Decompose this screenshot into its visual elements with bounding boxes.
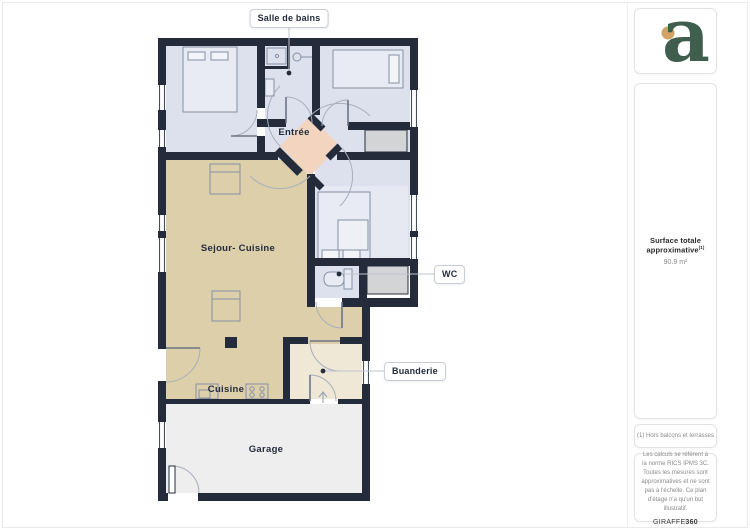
wardrobe-icon — [367, 266, 408, 294]
wardrobe-icon — [365, 130, 407, 152]
bed-icon — [183, 47, 237, 112]
floorplan-page: Entrée Sejour- Cuisine Cuisine Garage Sa… — [0, 0, 750, 530]
footnote-text: (1) Hors balcons et terrasses — [637, 433, 714, 439]
disclaimer-text: Les calculs se réfèrent à la norme RICS … — [640, 451, 711, 514]
bed-icon — [318, 186, 408, 262]
room-label-cuisine: Cuisine — [208, 384, 244, 395]
logo-letter: a — [662, 10, 710, 72]
cabinet-icon — [265, 79, 274, 96]
surface-panel: Surface totale approximative(1) 90.9 m² — [634, 83, 717, 419]
callout-salle-de-bains: Salle de bains — [250, 9, 329, 28]
stove-block-icon — [225, 337, 237, 348]
brand-wordmark: GIRAFFE360 — [653, 519, 698, 526]
room-label-garage: Garage — [249, 444, 284, 455]
room-label-sejour-cuisine: Sejour- Cuisine — [201, 243, 275, 254]
logo-panel: a — [634, 8, 717, 74]
callout-wc: WC — [434, 265, 465, 284]
brand-logo-icon: a — [635, 10, 716, 72]
surface-footnote-marker: (1) — [699, 245, 705, 250]
surface-title: Surface totale approximative(1) — [635, 236, 716, 255]
room-label-entree: Entrée — [278, 127, 309, 138]
plan-sidebar-divider — [627, 3, 628, 527]
garage-door-leaf — [169, 466, 175, 493]
footnote-panel: (1) Hors balcons et terrasses — [634, 424, 717, 448]
disclaimer-panel: Les calculs se réfèrent à la norme RICS … — [634, 453, 717, 522]
bed-icon — [333, 50, 403, 88]
surface-value: 90.9 m² — [664, 259, 688, 266]
callout-buanderie: Buanderie — [384, 362, 446, 381]
